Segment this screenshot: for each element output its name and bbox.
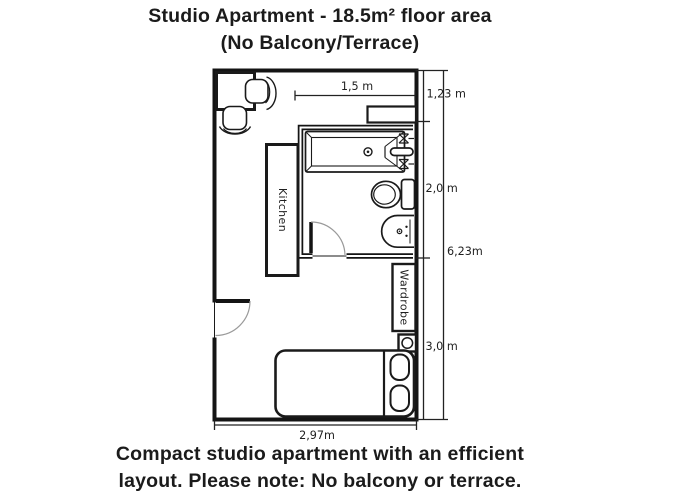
floor-plan-drawing: Kitchen Wardrobe 1,5 m <box>0 0 700 500</box>
bathroom-door-icon <box>311 222 345 256</box>
dimension-right-lower-label: 3,0 m <box>426 340 458 353</box>
pillow-icon <box>391 355 410 381</box>
shelf-icon <box>368 107 417 123</box>
dimension-right-upper-label: 1,23 m <box>427 88 466 101</box>
caption-line-2: layout. Please note: No balcony or terra… <box>0 468 640 495</box>
wardrobe: Wardrobe <box>393 264 416 331</box>
dimension-right-middle-label: 2,0 m <box>426 182 458 195</box>
bed-icon <box>276 351 415 417</box>
dimension-right-total-label: 6,23m <box>447 245 483 258</box>
floor-plan-page: Studio Apartment - 18.5m² floor area (No… <box>0 0 700 500</box>
pillow-icon <box>391 386 410 412</box>
kitchen-counter: Kitchen <box>267 145 299 276</box>
page-caption: Compact studio apartment with an efficie… <box>0 441 640 495</box>
dimension-right-total: 6,23m <box>444 71 483 420</box>
dimension-top-width-label: 1,5 m <box>341 80 373 93</box>
chair-icon <box>220 107 251 135</box>
wardrobe-label: Wardrobe <box>398 269 411 325</box>
caption-line-1: Compact studio apartment with an efficie… <box>0 441 640 468</box>
toilet-icon <box>372 180 415 210</box>
sink-icon <box>382 216 414 248</box>
entrance-door-icon <box>216 301 251 336</box>
kitchen-label: Kitchen <box>276 188 289 232</box>
stool-icon <box>399 335 417 352</box>
dimension-top-width: 1,5 m <box>295 80 415 101</box>
bathroom <box>301 128 415 261</box>
dimension-bottom-width: 2,97m <box>215 421 417 443</box>
